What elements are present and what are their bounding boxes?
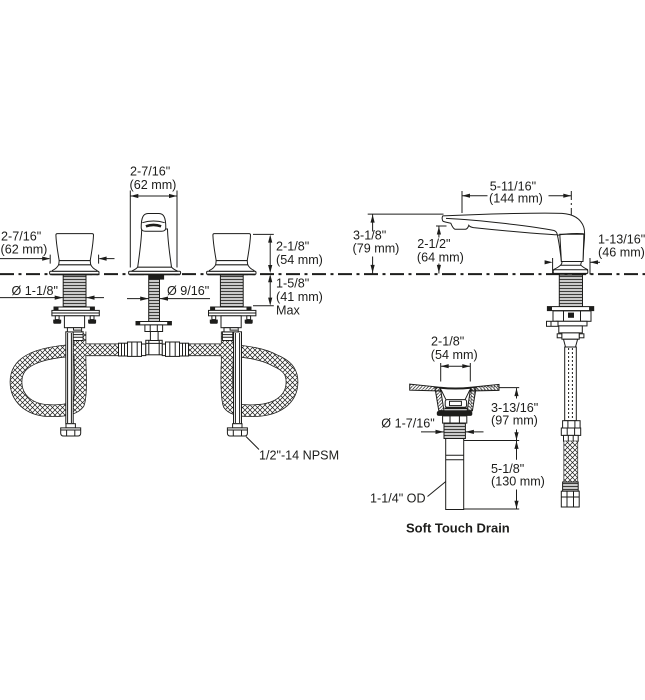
svg-text:2-1/8": 2-1/8" xyxy=(276,240,309,254)
svg-text:(41 mm): (41 mm) xyxy=(276,290,323,304)
svg-text:Ø 1-1/8": Ø 1-1/8" xyxy=(12,284,58,298)
svg-text:1-5/8": 1-5/8" xyxy=(276,277,309,291)
svg-text:2-7/16": 2-7/16" xyxy=(130,165,170,179)
svg-text:2-1/8": 2-1/8" xyxy=(431,334,464,348)
svg-text:(97 mm): (97 mm) xyxy=(491,413,538,427)
svg-text:(62 mm): (62 mm) xyxy=(130,178,177,192)
svg-text:(54 mm): (54 mm) xyxy=(431,348,478,362)
svg-text:(79 mm): (79 mm) xyxy=(353,242,400,256)
svg-text:1-13/16": 1-13/16" xyxy=(598,232,645,246)
svg-text:(130 mm): (130 mm) xyxy=(491,474,545,488)
svg-text:1-1/4" OD: 1-1/4" OD xyxy=(370,492,426,506)
svg-text:Soft Touch Drain: Soft Touch Drain xyxy=(406,521,510,536)
svg-text:Ø 9/16": Ø 9/16" xyxy=(167,284,209,298)
svg-text:1/2"-14 NPSM: 1/2"-14 NPSM xyxy=(259,449,339,463)
svg-text:2-1/2": 2-1/2" xyxy=(417,237,450,251)
svg-text:(46 mm): (46 mm) xyxy=(598,246,645,260)
svg-text:Max: Max xyxy=(276,303,300,317)
svg-text:2-7/16": 2-7/16" xyxy=(1,229,41,243)
svg-text:3-1/8": 3-1/8" xyxy=(353,228,386,242)
svg-text:(54 mm): (54 mm) xyxy=(276,253,323,267)
svg-text:Ø 1-7/16": Ø 1-7/16" xyxy=(381,416,434,430)
svg-text:(144 mm): (144 mm) xyxy=(489,192,543,206)
svg-text:(64 mm): (64 mm) xyxy=(417,251,464,265)
svg-text:(62 mm): (62 mm) xyxy=(1,243,48,257)
